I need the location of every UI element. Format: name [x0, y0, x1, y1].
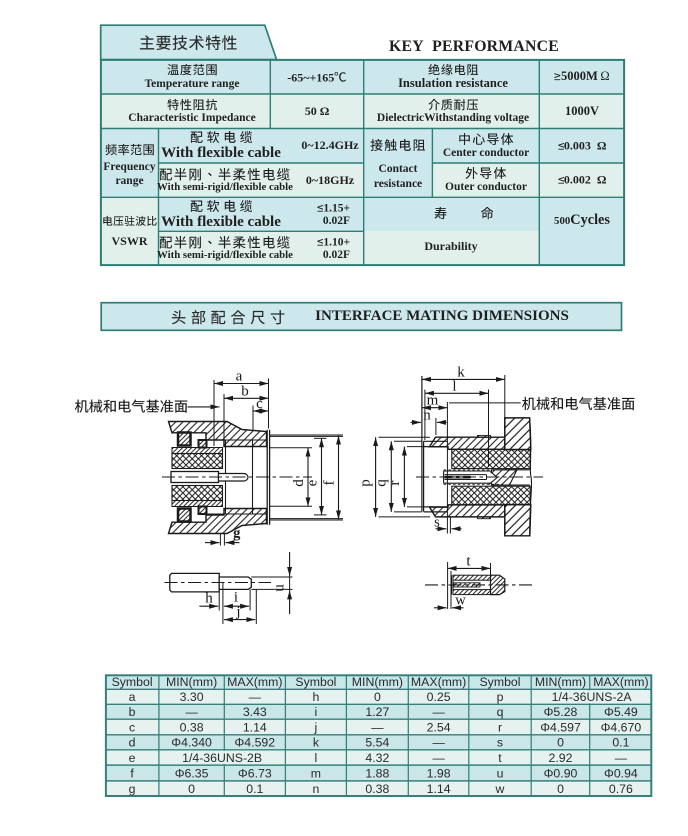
svg-text:—: —: [432, 751, 445, 765]
svg-text:d: d: [129, 736, 136, 750]
svg-text:1/4-36UNS-2B: 1/4-36UNS-2B: [182, 751, 262, 765]
svg-text:Φ6.35: Φ6.35: [175, 766, 209, 780]
svg-text:n: n: [423, 407, 431, 423]
svg-text:0.1: 0.1: [612, 736, 629, 750]
svg-text:f: f: [322, 481, 338, 486]
svg-text:0: 0: [557, 782, 564, 796]
svg-text:1.88: 1.88: [365, 766, 389, 780]
svg-text:0.38: 0.38: [365, 782, 389, 796]
svg-text:j: j: [235, 604, 240, 620]
svg-text:1.98: 1.98: [427, 766, 451, 780]
svg-text:h: h: [312, 690, 319, 704]
svg-text:3.43: 3.43: [243, 705, 267, 719]
svg-text:Symbol: Symbol: [295, 675, 336, 689]
svg-text:MAX(mm): MAX(mm): [593, 675, 648, 689]
svg-text:Φ4.597: Φ4.597: [540, 720, 581, 734]
svg-text:t: t: [498, 751, 502, 765]
svg-text:MIN(mm): MIN(mm): [535, 675, 586, 689]
svg-text:2.54: 2.54: [427, 720, 451, 734]
svg-text:a: a: [129, 690, 136, 704]
svg-text:q: q: [497, 705, 504, 719]
svg-text:e: e: [305, 479, 321, 486]
svg-text:—: —: [432, 736, 445, 750]
svg-text:Φ4.340: Φ4.340: [171, 736, 212, 750]
svg-text:0: 0: [188, 782, 195, 796]
svg-text:2.92: 2.92: [549, 751, 573, 765]
svg-text:4.32: 4.32: [365, 751, 389, 765]
svg-text:k: k: [313, 736, 320, 750]
svg-text:0: 0: [557, 736, 564, 750]
svg-text:1/4-36UNS-2A: 1/4-36UNS-2A: [552, 690, 633, 704]
svg-text:Φ5.49: Φ5.49: [604, 705, 638, 719]
svg-text:Symbol: Symbol: [112, 675, 153, 689]
svg-text:s: s: [434, 515, 440, 531]
svg-text:c: c: [256, 396, 263, 412]
svg-text:—: —: [615, 751, 628, 765]
svg-text:b: b: [241, 383, 249, 399]
svg-text:Φ0.94: Φ0.94: [604, 766, 638, 780]
svg-text:1.14: 1.14: [243, 720, 267, 734]
svg-text:r: r: [498, 720, 502, 734]
svg-text:h: h: [205, 591, 213, 607]
svg-text:—: —: [249, 690, 262, 704]
svg-text:—: —: [371, 720, 384, 734]
svg-text:5.54: 5.54: [365, 736, 389, 750]
svg-text:t: t: [466, 553, 471, 569]
svg-text:l: l: [452, 378, 456, 394]
svg-text:0.1: 0.1: [246, 782, 263, 796]
svg-text:e: e: [129, 751, 136, 765]
svg-text:j: j: [314, 720, 318, 734]
svg-text:p: p: [497, 690, 504, 704]
svg-text:1.14: 1.14: [427, 782, 451, 796]
svg-text:MAX(mm): MAX(mm): [227, 675, 282, 689]
svg-text:0.25: 0.25: [427, 690, 451, 704]
svg-text:Symbol: Symbol: [479, 675, 520, 689]
svg-text:w: w: [495, 782, 505, 796]
svg-text:3.30: 3.30: [180, 690, 204, 704]
svg-text:Φ4.592: Φ4.592: [235, 736, 276, 750]
svg-text:—: —: [185, 705, 198, 719]
svg-text:p: p: [358, 479, 374, 487]
svg-text:m: m: [311, 766, 321, 780]
svg-text:a: a: [236, 369, 243, 385]
svg-text:f: f: [130, 766, 134, 780]
svg-text:b: b: [129, 705, 136, 719]
svg-text:MIN(mm): MIN(mm): [352, 675, 403, 689]
svg-text:s: s: [497, 736, 503, 750]
svg-text:i: i: [315, 705, 318, 719]
svg-text:n: n: [312, 782, 319, 796]
svg-text:0.76: 0.76: [609, 782, 633, 796]
svg-text:Φ6.73: Φ6.73: [238, 766, 272, 780]
svg-text:g: g: [129, 782, 136, 796]
svg-text:u: u: [272, 584, 288, 592]
svg-text:u: u: [497, 766, 504, 780]
svg-text:Φ5.28: Φ5.28: [544, 705, 578, 719]
svg-text:m: m: [427, 393, 439, 409]
svg-text:c: c: [129, 720, 135, 734]
svg-text:Φ4.670: Φ4.670: [601, 720, 642, 734]
svg-text:w: w: [455, 593, 466, 609]
svg-text:MIN(mm): MIN(mm): [166, 675, 217, 689]
svg-text:k: k: [457, 364, 465, 380]
svg-text:l: l: [315, 751, 318, 765]
svg-text:—: —: [432, 705, 445, 719]
svg-text:1.27: 1.27: [365, 705, 389, 719]
svg-text:0.38: 0.38: [180, 720, 204, 734]
svg-text:0: 0: [374, 690, 381, 704]
svg-text:MAX(mm): MAX(mm): [411, 675, 466, 689]
svg-text:Φ0.90: Φ0.90: [544, 766, 578, 780]
svg-text:r: r: [387, 481, 403, 486]
svg-text:g: g: [233, 526, 241, 542]
